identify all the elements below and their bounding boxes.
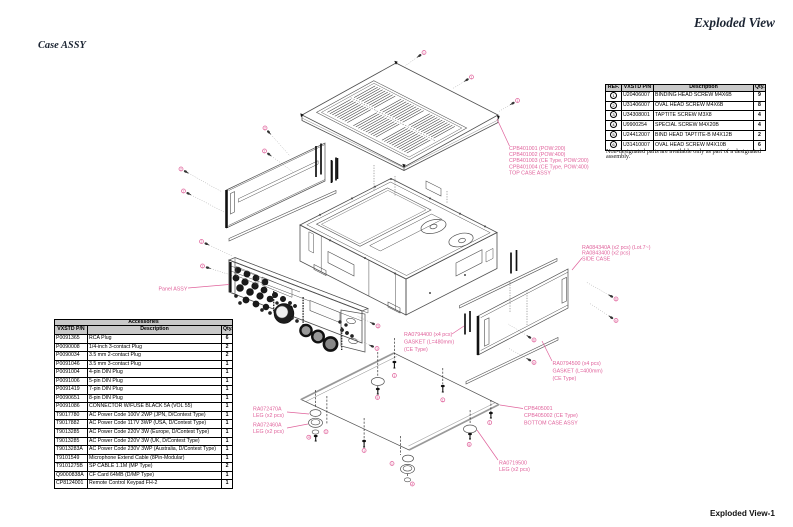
svg-text:LEG (x2 pcs): LEG (x2 pcs) xyxy=(253,429,284,435)
svg-text:RA072460A: RA072460A xyxy=(253,423,282,429)
svg-text:CPB405002 (CE Type): CPB405002 (CE Type) xyxy=(524,413,578,419)
svg-text:GASKET (L=480mm): GASKET (L=480mm) xyxy=(404,339,454,345)
svg-text:CPB401002 (POW:400): CPB401002 (POW:400) xyxy=(509,152,566,158)
svg-text:1: 1 xyxy=(325,430,327,434)
svg-text:3: 3 xyxy=(377,324,379,328)
svg-text:3: 3 xyxy=(376,347,378,351)
svg-text:RA072470A: RA072470A xyxy=(253,407,282,413)
svg-text:1: 1 xyxy=(391,462,393,466)
svg-text:SIDE CASE: SIDE CASE xyxy=(582,256,611,262)
svg-text:2: 2 xyxy=(183,189,185,193)
svg-text:2: 2 xyxy=(180,167,182,171)
svg-text:1: 1 xyxy=(423,51,425,55)
svg-text:LEG (x2 pcs): LEG (x2 pcs) xyxy=(499,467,530,473)
svg-text:5: 5 xyxy=(468,443,470,447)
svg-text:(CE Type): (CE Type) xyxy=(404,347,428,353)
svg-text:1: 1 xyxy=(471,76,473,80)
svg-text:CPB405001: CPB405001 xyxy=(524,406,553,412)
svg-text:CPB401003 (CE Type, POW:200): CPB401003 (CE Type, POW:200) xyxy=(509,158,589,164)
svg-text:RA0719500: RA0719500 xyxy=(499,461,527,467)
svg-text:1: 1 xyxy=(489,421,491,425)
svg-text:(CE Type): (CE Type) xyxy=(553,376,577,382)
svg-text:RA0794400 (x4 pcs): RA0794400 (x4 pcs) xyxy=(404,332,453,338)
svg-text:6: 6 xyxy=(615,297,617,301)
svg-text:6: 6 xyxy=(533,361,535,365)
svg-text:GASKET (L=400mm): GASKET (L=400mm) xyxy=(553,368,603,374)
svg-text:6: 6 xyxy=(615,319,617,323)
svg-text:RA0794500 (x4 pcs): RA0794500 (x4 pcs) xyxy=(553,361,602,367)
svg-text:6: 6 xyxy=(533,338,535,342)
svg-text:CPB401004 (CE Type, POW:400): CPB401004 (CE Type, POW:400) xyxy=(509,164,589,170)
svg-text:4: 4 xyxy=(411,482,413,486)
svg-text:CPB401001 (POW:200): CPB401001 (POW:200) xyxy=(509,146,566,152)
svg-text:BOTTOM CASE ASSY: BOTTOM CASE ASSY xyxy=(524,420,578,426)
svg-text:1: 1 xyxy=(363,449,365,453)
svg-text:TOP CASE ASSY: TOP CASE ASSY xyxy=(509,170,551,176)
svg-text:2: 2 xyxy=(264,126,266,130)
svg-text:2: 2 xyxy=(202,264,204,268)
svg-text:4: 4 xyxy=(308,436,310,440)
svg-text:Panel ASSY: Panel ASSY xyxy=(159,287,188,293)
svg-text:1: 1 xyxy=(517,99,519,103)
svg-text:2: 2 xyxy=(264,149,266,153)
svg-text:LEG (x2 pcs): LEG (x2 pcs) xyxy=(253,413,284,419)
svg-text:1: 1 xyxy=(442,398,444,402)
svg-text:5: 5 xyxy=(377,396,379,400)
svg-text:2: 2 xyxy=(201,240,203,244)
svg-text:1: 1 xyxy=(393,374,395,378)
